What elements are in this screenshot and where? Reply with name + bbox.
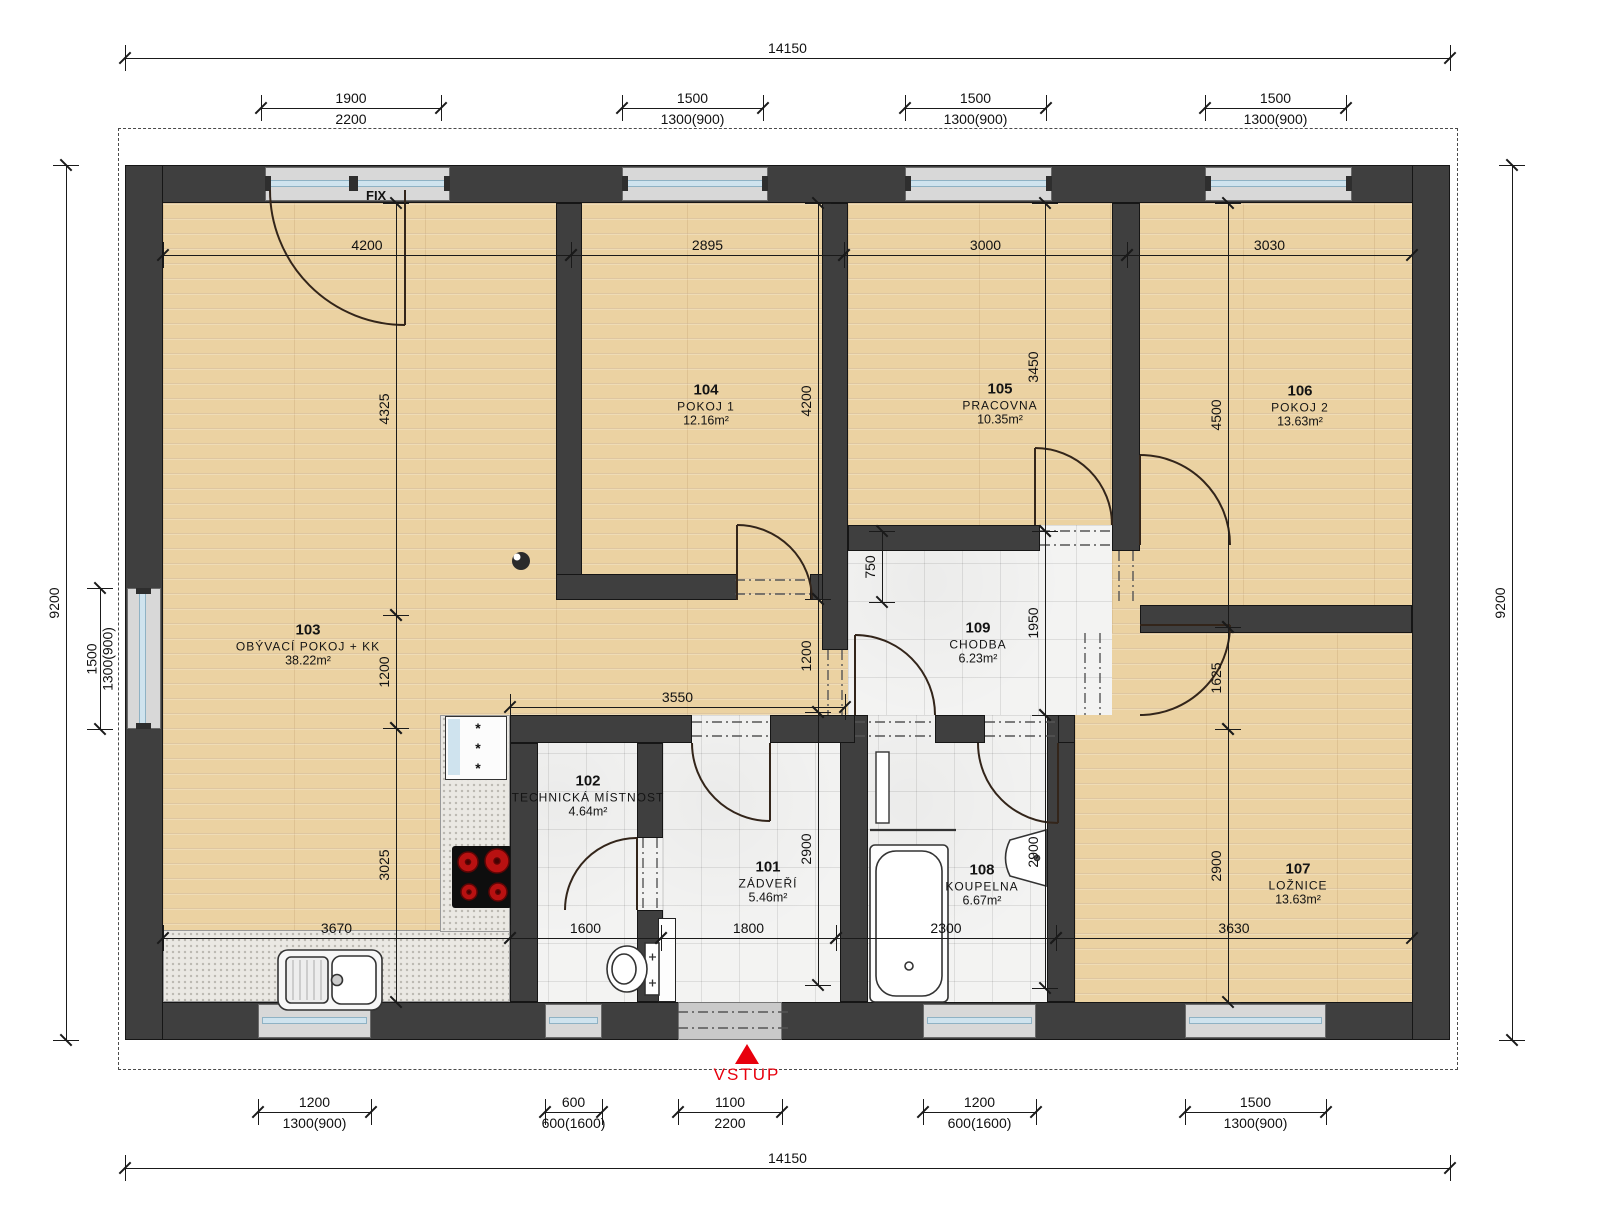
fix-window-label: FIX	[366, 188, 386, 203]
room-label: 102TECHNICKÁ MÍSTNOST4.64m²	[512, 773, 665, 820]
entrance-label: VSTUP	[699, 1065, 795, 1085]
room-label: 107LOŽNICE13.63m²	[1268, 861, 1327, 908]
floor-plan: ***	[0, 0, 1600, 1220]
room-label: 103OBÝVACÍ POKOJ + KK38.22m²	[236, 622, 380, 669]
room-label: 108KOUPELNA6.67m²	[945, 862, 1018, 909]
room-label: 105PRACOVNA10.35m²	[962, 381, 1037, 428]
room-label: 104POKOJ 112.16m²	[677, 382, 735, 429]
room-label: 101ZÁDVEŘÍ5.46m²	[738, 859, 797, 906]
entrance-arrow-icon	[735, 1044, 759, 1064]
room-label: 109CHODBA6.23m²	[949, 620, 1006, 667]
room-label: 106POKOJ 213.63m²	[1271, 383, 1329, 430]
room-labels-layer: 101ZÁDVEŘÍ5.46m²102TECHNICKÁ MÍSTNOST4.6…	[0, 0, 1600, 1220]
entrance-marker: VSTUP	[699, 1044, 795, 1085]
